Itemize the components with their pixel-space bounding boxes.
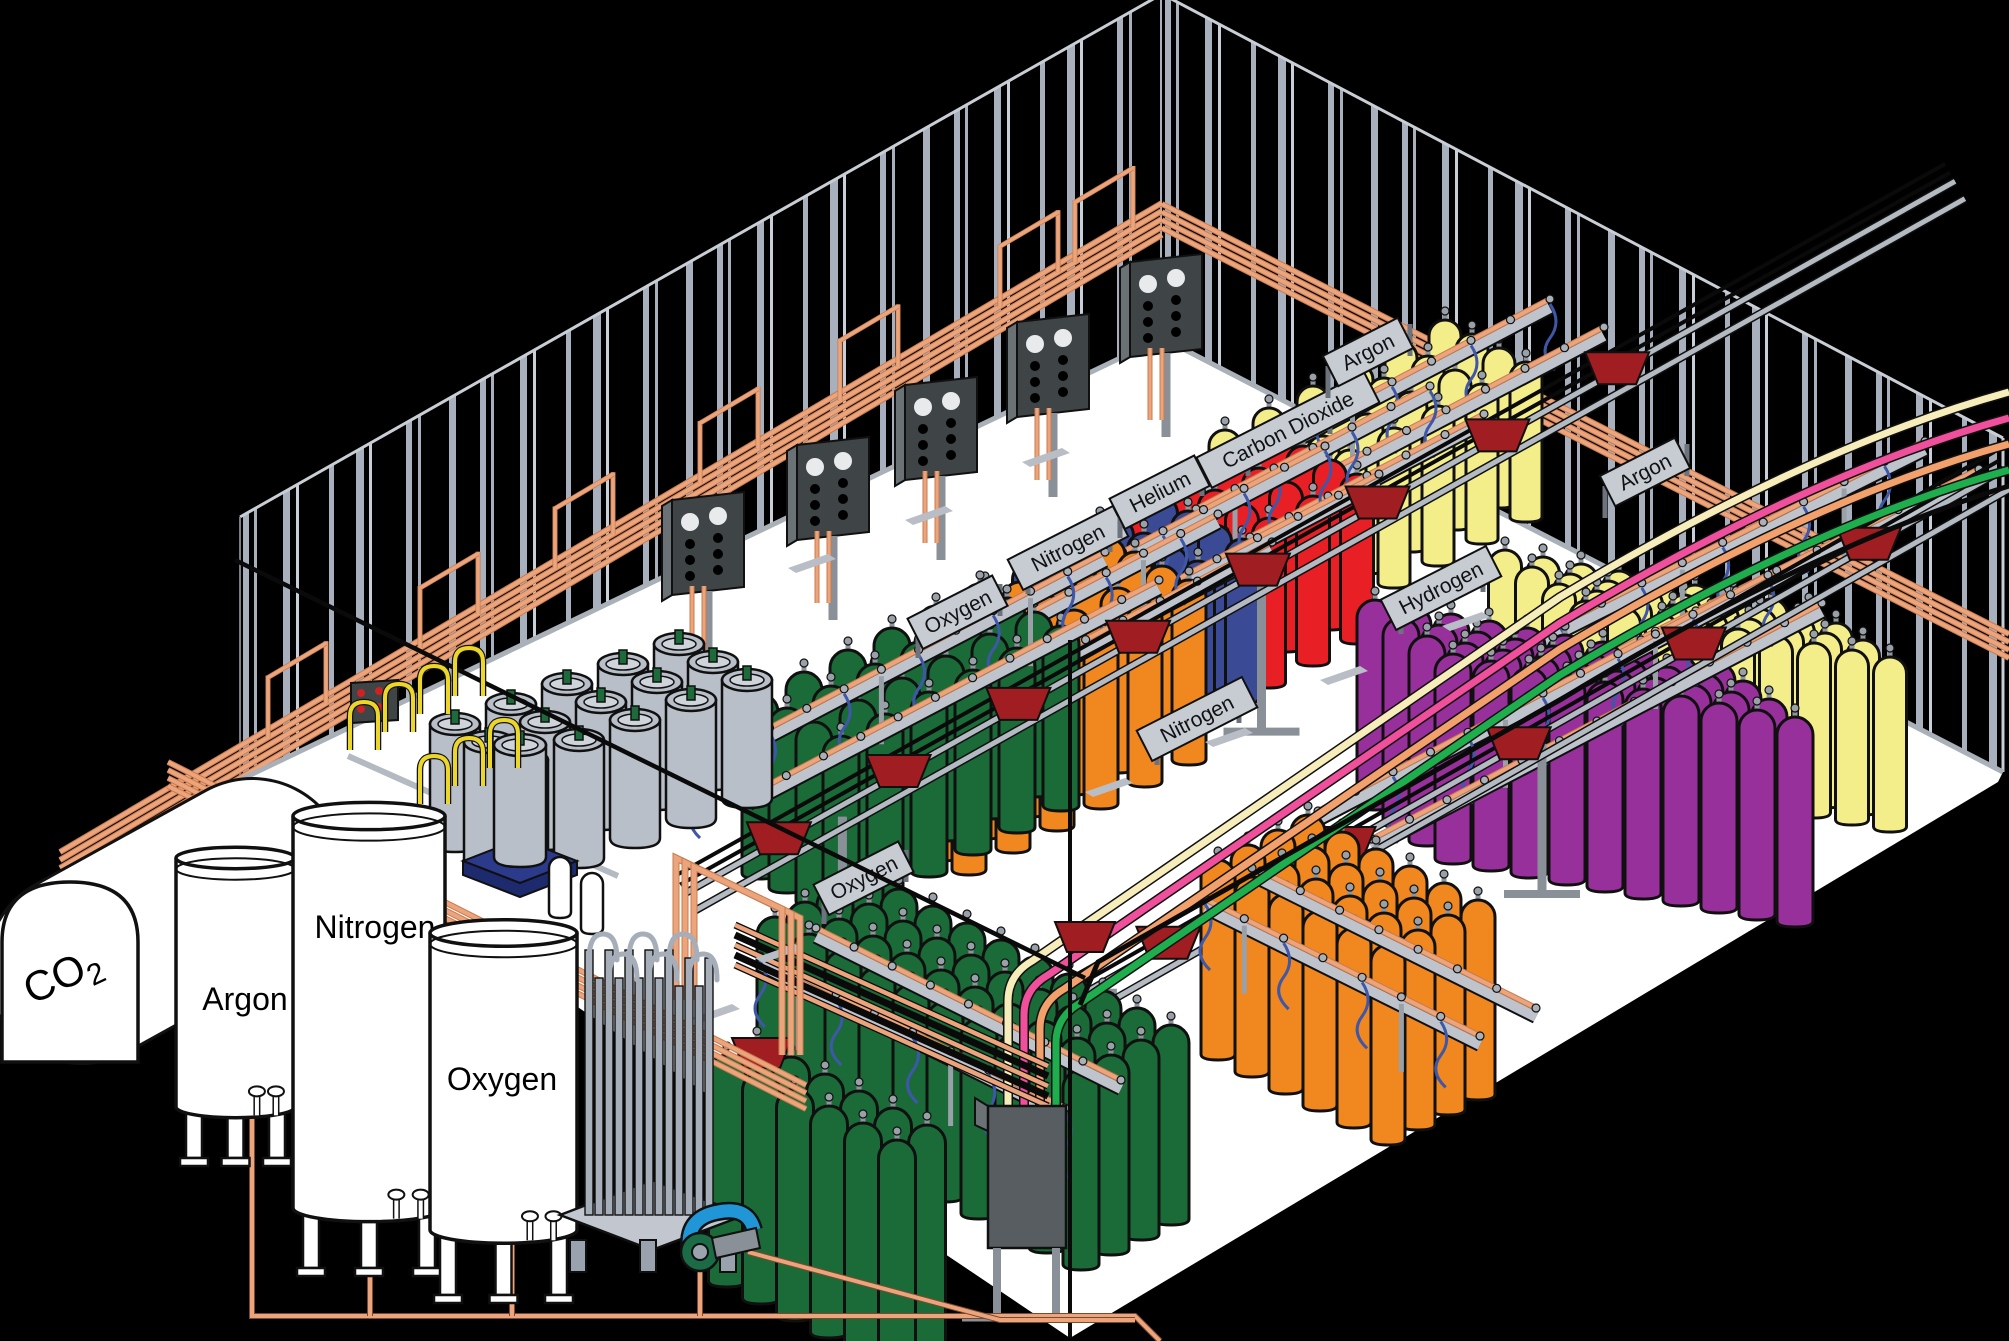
svg-text:Nitrogen: Nitrogen [315,909,436,945]
svg-text:Oxygen: Oxygen [447,1061,557,1097]
svg-text:Argon: Argon [202,981,287,1017]
